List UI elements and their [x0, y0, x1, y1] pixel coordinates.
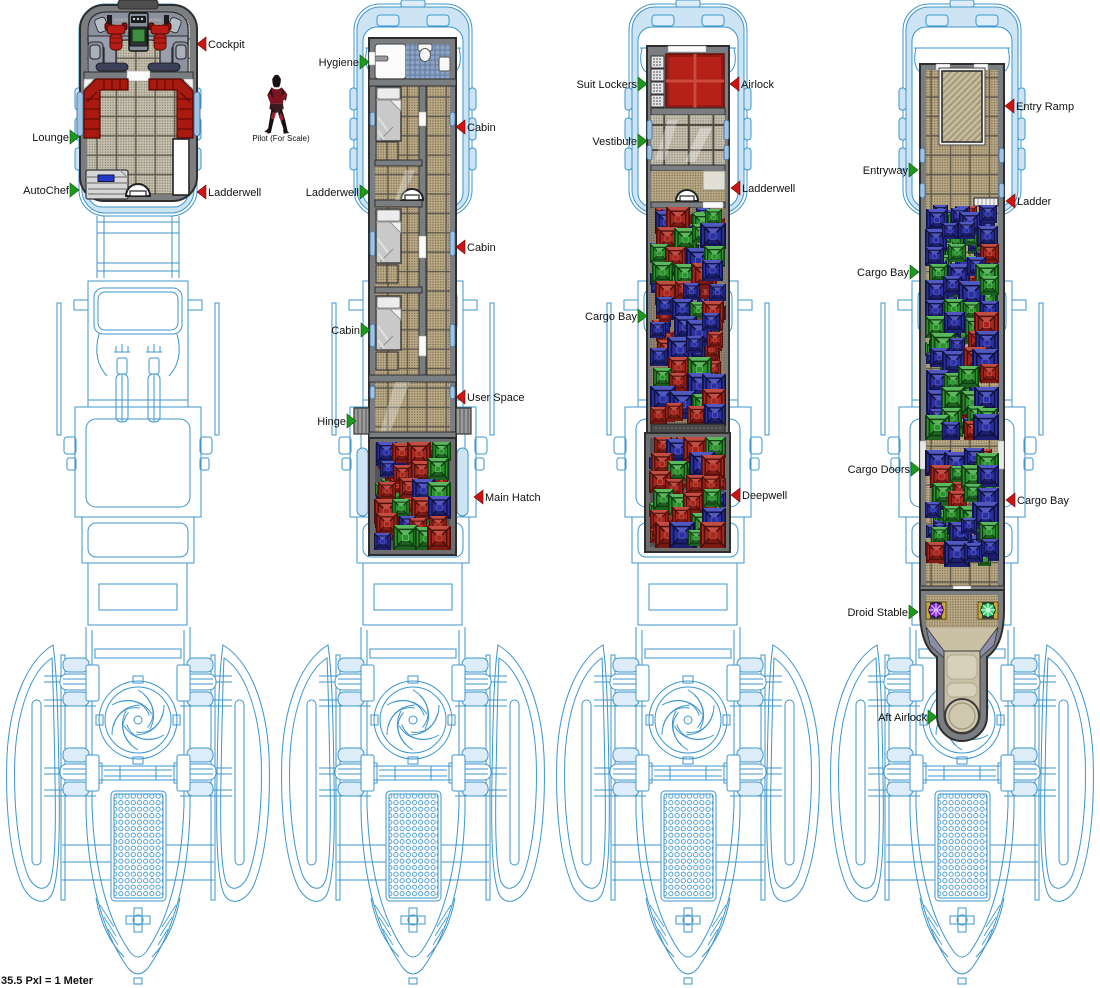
svg-text:Deepwell: Deepwell: [742, 490, 787, 502]
svg-text:Suit Lockers: Suit Lockers: [576, 79, 637, 91]
svg-text:Hinge: Hinge: [317, 416, 346, 428]
svg-text:Pilot (For Scale): Pilot (For Scale): [252, 134, 310, 143]
svg-text:Ladder: Ladder: [1017, 196, 1052, 208]
svg-text:Entryway: Entryway: [863, 165, 909, 177]
svg-text:Vestibule: Vestibule: [592, 136, 637, 148]
svg-text:Hygiene: Hygiene: [319, 57, 359, 69]
svg-text:Aft Airlock: Aft Airlock: [878, 712, 927, 724]
svg-text:User Space: User Space: [467, 392, 524, 404]
svg-text:Ladderwell: Ladderwell: [742, 183, 795, 195]
svg-text:Cabin: Cabin: [331, 325, 360, 337]
svg-text:Lounge: Lounge: [32, 132, 69, 144]
svg-text:Ladderwell: Ladderwell: [208, 187, 261, 199]
svg-text:Cargo Doors: Cargo Doors: [848, 464, 911, 476]
svg-text:Cabin: Cabin: [467, 122, 496, 134]
svg-text:35.5 Pxl = 1 Meter: 35.5 Pxl = 1 Meter: [1, 975, 94, 987]
svg-text:Cargo Bay: Cargo Bay: [1017, 495, 1069, 507]
svg-text:Cargo Bay: Cargo Bay: [585, 311, 637, 323]
svg-text:Cabin: Cabin: [467, 242, 496, 254]
svg-text:Entry Ramp: Entry Ramp: [1016, 101, 1074, 113]
svg-text:Cockpit: Cockpit: [208, 39, 245, 51]
svg-text:AutoChef: AutoChef: [23, 185, 70, 197]
svg-text:Droid Stable: Droid Stable: [847, 607, 908, 619]
svg-text:Cargo Bay: Cargo Bay: [857, 267, 909, 279]
svg-text:Main Hatch: Main Hatch: [485, 492, 541, 504]
svg-text:Airlock: Airlock: [741, 79, 775, 91]
svg-text:Ladderwell: Ladderwell: [306, 187, 359, 199]
